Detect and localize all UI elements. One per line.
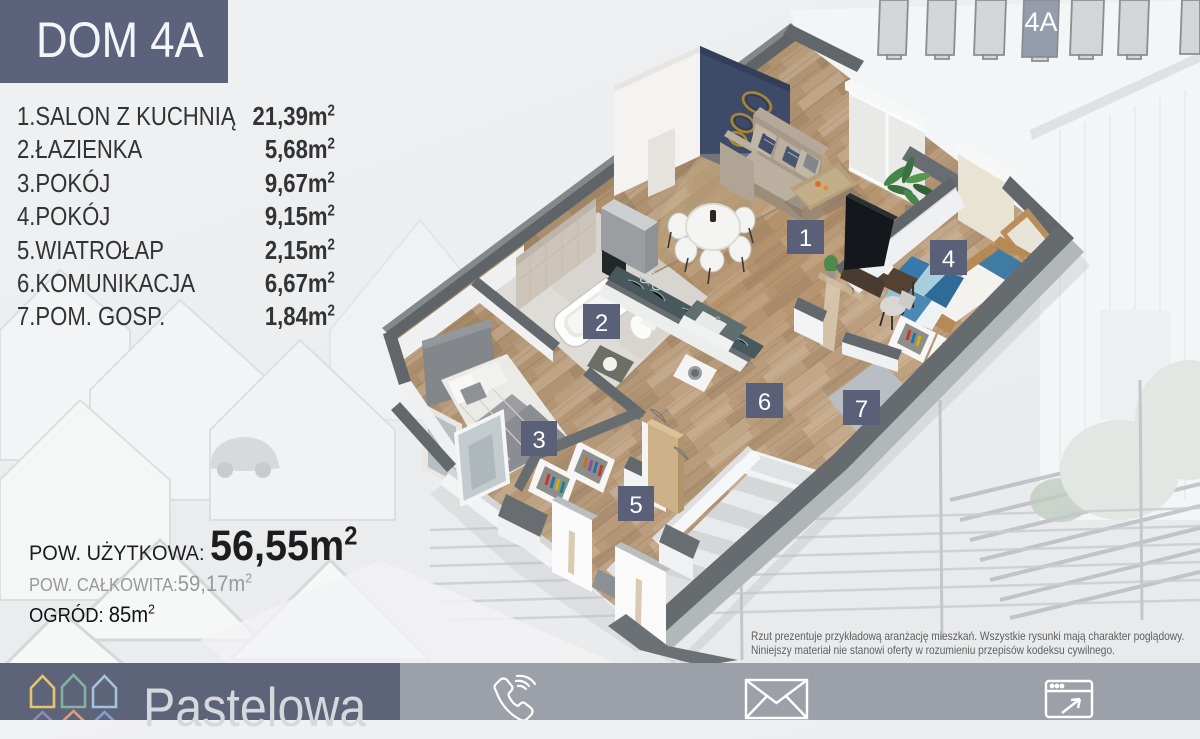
svg-text:6: 6 [758, 389, 771, 416]
svg-text:2: 2 [595, 310, 608, 337]
svg-text:4: 4 [942, 246, 955, 273]
svg-text:3: 3 [532, 427, 545, 454]
svg-text:5: 5 [629, 492, 642, 519]
svg-text:7: 7 [855, 396, 868, 423]
svg-text:1: 1 [799, 225, 812, 252]
